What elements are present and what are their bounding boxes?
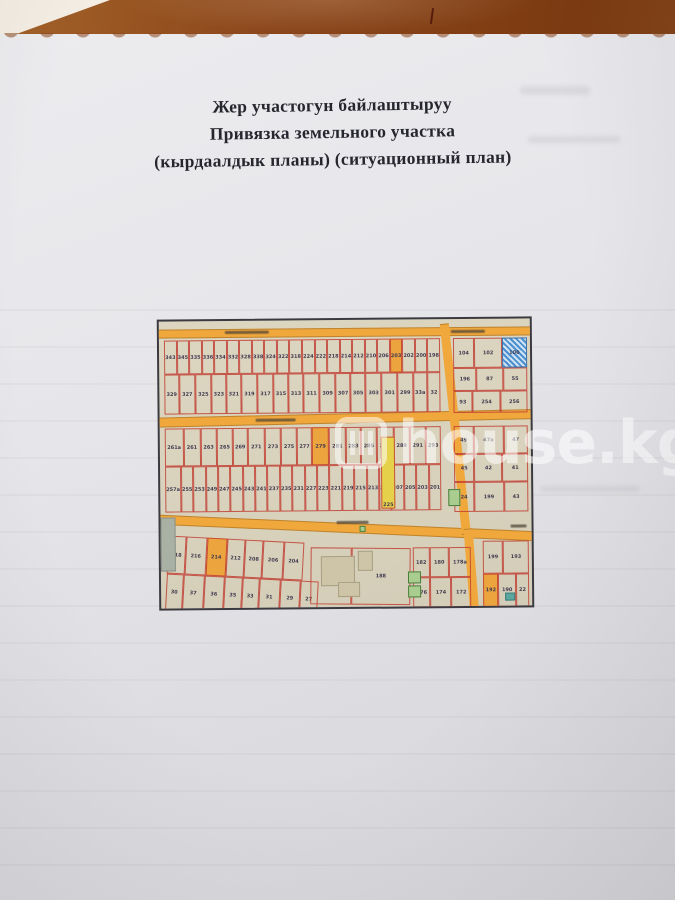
parcel: 87 xyxy=(476,368,503,391)
parcel-block: 261a261263265269271273275277279281283285… xyxy=(165,426,441,466)
parcel: 327 xyxy=(179,374,196,414)
parcel-number: 257a xyxy=(166,487,180,492)
parcel-number: 323 xyxy=(214,392,224,397)
parcel: 328 xyxy=(239,340,252,374)
parcel: 196 xyxy=(453,368,476,391)
parcel: 49 xyxy=(454,426,474,454)
parcel-number: 213 xyxy=(368,486,378,491)
parcel-number: 336 xyxy=(203,355,213,360)
parcel-block: 93254256 xyxy=(453,390,527,413)
parcel: 305 xyxy=(351,373,366,413)
parcel: 291 xyxy=(410,426,426,464)
parcel-number: 261a xyxy=(167,445,181,450)
parcel-number: 204 xyxy=(288,559,299,565)
parcel-number: 87 xyxy=(486,377,493,382)
parcel: 256 xyxy=(501,390,528,412)
parcel: 222 xyxy=(314,339,327,373)
parcel-number: 291 xyxy=(413,443,423,448)
parcel: 33a xyxy=(413,372,428,412)
map-feature xyxy=(448,489,460,506)
parcel: 283 xyxy=(345,427,361,465)
parcel: 325 xyxy=(195,374,211,414)
parcel: 253 xyxy=(193,466,206,512)
parcel-block: 182180178a xyxy=(413,547,471,578)
ink-bleed-smudge xyxy=(540,486,640,492)
parcel-number: 24 xyxy=(461,495,468,500)
parcel-number: 254 xyxy=(481,400,491,405)
parcel-number: 221 xyxy=(331,486,341,491)
parcel-number: 100 xyxy=(509,350,519,355)
parcel: 299 xyxy=(397,372,413,412)
parcel-number: 249 xyxy=(207,487,217,492)
map-feature: 225 xyxy=(381,437,396,509)
parcel-number: 214 xyxy=(211,555,222,561)
parcel-number: 322 xyxy=(278,354,288,359)
parcel-number: 275 xyxy=(284,444,294,449)
parcel: 243 xyxy=(243,466,256,512)
parcel-number: 218 xyxy=(328,354,338,359)
parcel-number: 279 xyxy=(315,444,325,449)
street-name-label xyxy=(451,330,485,333)
parcel: 334 xyxy=(214,340,227,374)
street-name-label xyxy=(225,331,269,334)
street-name-label xyxy=(337,521,369,524)
parcel-number: 203 xyxy=(391,354,401,359)
parcel-number: 273 xyxy=(268,445,278,450)
map-feature xyxy=(505,593,515,601)
parcel: 343 xyxy=(164,340,177,374)
parcel: 269 xyxy=(232,428,248,466)
parcel-number: 202 xyxy=(403,353,413,358)
parcel: 329 xyxy=(164,374,179,414)
parcel-number: 206 xyxy=(268,558,279,564)
parcel: 303 xyxy=(365,373,382,413)
parcel-block: 199193 xyxy=(483,540,529,573)
parcel-number: 212 xyxy=(353,354,363,359)
photo-of-document: Жер участогун байлаштыруу Привязка земел… xyxy=(0,0,675,900)
parcel: 309 xyxy=(320,373,336,413)
parcel-number: 285 xyxy=(364,444,374,449)
map-feature xyxy=(408,585,421,597)
parcel-number: 210 xyxy=(366,354,376,359)
parcel-number: 277 xyxy=(299,444,309,449)
map-canvas: 3433453353363343323283383243223182242222… xyxy=(159,318,532,608)
parcel-number: 307 xyxy=(338,391,348,396)
parcel: 263 xyxy=(200,428,217,466)
parcel: 293 xyxy=(425,426,441,464)
parcel: 317 xyxy=(257,374,273,414)
parcel: 192 xyxy=(483,574,499,607)
notebook-perforation-edge xyxy=(0,33,675,43)
parcel: 29 xyxy=(279,580,301,611)
parcel: 47a xyxy=(473,426,503,454)
parcel: 322 xyxy=(277,339,290,373)
parcel: 172 xyxy=(451,577,471,607)
parcel: 273 xyxy=(265,428,282,466)
parcel: 313 xyxy=(288,373,303,413)
parcel-number: 335 xyxy=(190,355,200,360)
parcel-number: 327 xyxy=(182,392,192,397)
parcel: 261 xyxy=(183,428,200,466)
parcel-number: 22 xyxy=(519,588,526,593)
parcel: 203 xyxy=(390,339,403,373)
parcel: 279 xyxy=(312,427,329,465)
parcel-number: 247 xyxy=(219,487,229,492)
parcel: 178a xyxy=(449,547,471,577)
parcel-block: 104102100 xyxy=(453,337,527,368)
parcel-number: 243 xyxy=(244,487,254,492)
parcel: 206 xyxy=(262,541,285,580)
parcel: 271 xyxy=(248,428,265,466)
parcel: 247 xyxy=(218,466,231,512)
parcel: 203 xyxy=(416,464,429,510)
parcel: 285 xyxy=(361,427,377,465)
parcel-number: 192 xyxy=(486,588,496,593)
parcel: 36 xyxy=(203,576,225,611)
parcel-number: 303 xyxy=(368,391,378,396)
parcel-number: 255 xyxy=(182,487,192,492)
parcel-number: 289 xyxy=(396,443,406,448)
parcel-number: 324 xyxy=(265,355,275,360)
parcel: 301 xyxy=(382,373,398,413)
parcel-number: 269 xyxy=(235,445,245,450)
parcel-number: 345 xyxy=(178,355,188,360)
parcel: 227 xyxy=(305,465,318,511)
parcel: 205 xyxy=(404,464,417,510)
parcel: 345 xyxy=(176,340,189,374)
parcel: 212 xyxy=(352,339,365,373)
parcel: 281 xyxy=(329,427,346,465)
parcel-number: 283 xyxy=(348,444,358,449)
parcel-number: 201 xyxy=(430,485,440,490)
parcel-number: 231 xyxy=(293,486,303,491)
parcel-number: 33a xyxy=(415,390,425,395)
parcel: 311 xyxy=(303,373,320,413)
parcel: 241 xyxy=(255,466,268,512)
parcel: 224 xyxy=(302,339,315,373)
parcel-number: 329 xyxy=(167,392,177,397)
parcel-number: 313 xyxy=(291,391,301,396)
parcel-number: 271 xyxy=(251,445,261,450)
parcel: 332 xyxy=(227,340,240,374)
table-surface-sheen xyxy=(120,0,540,34)
parcel-number: 219 xyxy=(343,486,353,491)
parcel: 336 xyxy=(202,340,215,374)
parcel: 307 xyxy=(335,373,351,413)
parcel-number: 42 xyxy=(485,466,492,471)
parcel-number: 245 xyxy=(231,487,241,492)
parcel: 315 xyxy=(273,373,289,413)
parcel-number: 208 xyxy=(248,557,259,563)
parcel-number: 193 xyxy=(511,555,521,560)
parcel-number: 199 xyxy=(488,555,498,560)
parcel: 45 xyxy=(454,454,475,482)
parcel-number: 188 xyxy=(376,574,386,579)
map-feature xyxy=(408,571,421,583)
parcel-number: 180 xyxy=(434,560,444,565)
parcel-number: 30 xyxy=(171,590,178,595)
parcel: 199 xyxy=(483,541,504,574)
parcel-block: 1968755 xyxy=(453,367,527,391)
parcel-number: 29 xyxy=(286,596,293,601)
parcel: 41 xyxy=(502,453,528,481)
parcel-number: 49 xyxy=(460,438,467,443)
parcel: 201 xyxy=(429,464,442,510)
parcel: 35 xyxy=(223,577,243,611)
parcel-number: 261 xyxy=(187,445,197,450)
parcel-number: 328 xyxy=(240,355,250,360)
parcel-number: 172 xyxy=(456,590,466,595)
parcel-number: 317 xyxy=(260,392,270,397)
parcel-number: 305 xyxy=(353,391,363,396)
parcel: 174 xyxy=(430,577,451,607)
parcel: 216 xyxy=(184,536,207,575)
parcel: 43 xyxy=(504,481,529,511)
parcel-number: 32 xyxy=(430,390,437,395)
parcel: 199 xyxy=(474,482,504,512)
parcel: 180 xyxy=(429,547,449,577)
parcel-number: 311 xyxy=(306,391,316,396)
parcel: 275 xyxy=(281,427,297,465)
parcel: 249 xyxy=(206,466,219,512)
parcel: 93 xyxy=(453,391,472,413)
parcel: 335 xyxy=(189,340,202,374)
parcel: 221 xyxy=(329,465,342,511)
parcel-number: 203 xyxy=(417,485,427,490)
parcel-number: 37 xyxy=(190,591,197,596)
parcel: 255 xyxy=(181,466,194,512)
parcel-number: 196 xyxy=(460,377,470,382)
map-feature xyxy=(360,526,366,532)
parcel-number: 178a xyxy=(453,560,467,565)
parcel-number: 102 xyxy=(483,351,493,356)
cadastral-map: 3433453353363343323283383243223182242222… xyxy=(157,316,535,610)
parcel-number: 225 xyxy=(383,503,393,508)
parcel: 223 xyxy=(317,465,330,511)
parcel-number: 35 xyxy=(229,593,236,598)
parcel: 277 xyxy=(297,427,313,465)
parcel-number: 227 xyxy=(306,486,316,491)
parcel: 257a xyxy=(165,466,181,512)
parcel: 30 xyxy=(165,574,183,611)
parcel-block: 176174172 xyxy=(413,577,471,608)
parcel-number: 212 xyxy=(230,556,241,562)
parcel: 245 xyxy=(230,466,243,512)
parcel: 214 xyxy=(340,339,353,373)
parcel-block: 2419943 xyxy=(454,481,528,512)
parcel-number: 223 xyxy=(318,486,328,491)
parcel-number: 256 xyxy=(509,399,519,404)
parcel-number: 237 xyxy=(269,487,279,492)
parcel: 318 xyxy=(289,339,302,373)
parcel-number: 43 xyxy=(513,494,520,499)
parcel-block: 3293273253233213193173153133113093073053… xyxy=(164,372,440,414)
parcel-number: 338 xyxy=(253,355,263,360)
parcel-number: 36 xyxy=(210,592,217,597)
parcel-number: 174 xyxy=(436,590,446,595)
parcel: 200 xyxy=(415,338,428,372)
parcel-number: 318 xyxy=(291,354,301,359)
parcel-number: 93 xyxy=(459,400,466,405)
parcel: 22 xyxy=(516,573,530,606)
parcel-number: 200 xyxy=(416,353,426,358)
parcel-number: 309 xyxy=(322,391,332,396)
parcel-number: 33 xyxy=(247,594,254,599)
parcel: 214 xyxy=(205,538,227,577)
parcel-number: 321 xyxy=(229,392,239,397)
parcel: 102 xyxy=(474,338,502,368)
parcel: 324 xyxy=(264,340,277,374)
parcel: 323 xyxy=(211,374,227,414)
parcel-number: 253 xyxy=(194,487,204,492)
parcel-number: 222 xyxy=(316,354,326,359)
parcel-number: 214 xyxy=(341,354,351,359)
parcel-number: 301 xyxy=(384,391,394,396)
parcel-number: 325 xyxy=(198,392,208,397)
parcel: 104 xyxy=(453,338,475,368)
parcel: 219 xyxy=(342,465,355,511)
parcel: 237 xyxy=(268,466,281,512)
parcel-number: 198 xyxy=(428,353,438,358)
map-feature xyxy=(358,551,373,571)
parcel: 202 xyxy=(402,338,415,372)
parcel-number: 332 xyxy=(228,355,238,360)
parcel: 193 xyxy=(503,540,529,573)
parcel-block: 3433453353363343323283383243223182242222… xyxy=(164,338,440,374)
parcel: 319 xyxy=(241,374,258,414)
parcel: 210 xyxy=(365,339,378,373)
parcel-number: 265 xyxy=(219,445,229,450)
parcel: 231 xyxy=(292,465,305,511)
parcel-number: 31 xyxy=(265,595,272,600)
parcel: 198 xyxy=(427,338,440,372)
parcel-number: 224 xyxy=(303,354,313,359)
document-title: Жер участогун байлаштыруу Привязка земел… xyxy=(59,88,605,177)
parcel-block: 454241 xyxy=(454,453,528,482)
parcel-number: 47 xyxy=(512,437,519,442)
parcel-number: 216 xyxy=(190,554,201,560)
parcel-block: 4947a47 xyxy=(454,425,528,454)
parcel: 37 xyxy=(182,574,205,610)
parcel-block: 257a255253249247245243241237235231227223… xyxy=(165,464,441,512)
street-name-label xyxy=(256,418,296,421)
parcel-number: 299 xyxy=(400,390,410,395)
parcel-number: 293 xyxy=(428,443,438,448)
parcel: 42 xyxy=(474,454,502,482)
street-name-label xyxy=(511,524,527,527)
parcel-number: 41 xyxy=(512,465,519,470)
parcel-number: 319 xyxy=(244,392,254,397)
parcel-number: 205 xyxy=(405,485,415,490)
parcel-number: 55 xyxy=(512,377,519,382)
parcel: 55 xyxy=(503,367,527,390)
parcel: 33 xyxy=(241,578,259,611)
parcel-number: 241 xyxy=(256,487,266,492)
parcel-number: 263 xyxy=(203,445,213,450)
parcel: 206 xyxy=(377,339,390,373)
parcel-number: 45 xyxy=(461,466,468,471)
parcel: 212 xyxy=(225,539,246,578)
map-feature xyxy=(338,582,360,597)
parcel-number: 281 xyxy=(332,444,342,449)
map-feature xyxy=(160,517,175,571)
parcel: 47 xyxy=(503,425,528,453)
parcel: 215 xyxy=(354,465,367,511)
parcel: 235 xyxy=(280,465,293,511)
parcel: 321 xyxy=(226,374,241,414)
parcel: 261a xyxy=(165,428,184,466)
parcel-number: 215 xyxy=(355,486,365,491)
parcel-number: 206 xyxy=(378,354,388,359)
parcel: 338 xyxy=(252,340,265,374)
parcel-number: 315 xyxy=(276,392,286,397)
parcel: 204 xyxy=(283,542,305,581)
parcel: 213 xyxy=(367,465,380,511)
parcel: 31 xyxy=(257,578,280,610)
parcel-number: 47a xyxy=(483,438,493,443)
parcel-number: 343 xyxy=(165,355,175,360)
parcel-number: 104 xyxy=(458,351,468,356)
parcel: 289 xyxy=(393,426,410,464)
parcel-block: 19219022 xyxy=(483,573,529,606)
parcel: 254 xyxy=(472,391,501,413)
parcel: 100 xyxy=(502,337,528,367)
parcel-number: 199 xyxy=(484,495,494,500)
parcel: 265 xyxy=(217,428,233,466)
parcel: 32 xyxy=(427,372,440,412)
parcel-number: 334 xyxy=(215,355,225,360)
parcel-number: 235 xyxy=(281,486,291,491)
parcel-number: 182 xyxy=(416,560,426,565)
parcel: 208 xyxy=(244,540,264,579)
parcel: 190 xyxy=(498,574,516,607)
parcel: 218 xyxy=(327,339,340,373)
